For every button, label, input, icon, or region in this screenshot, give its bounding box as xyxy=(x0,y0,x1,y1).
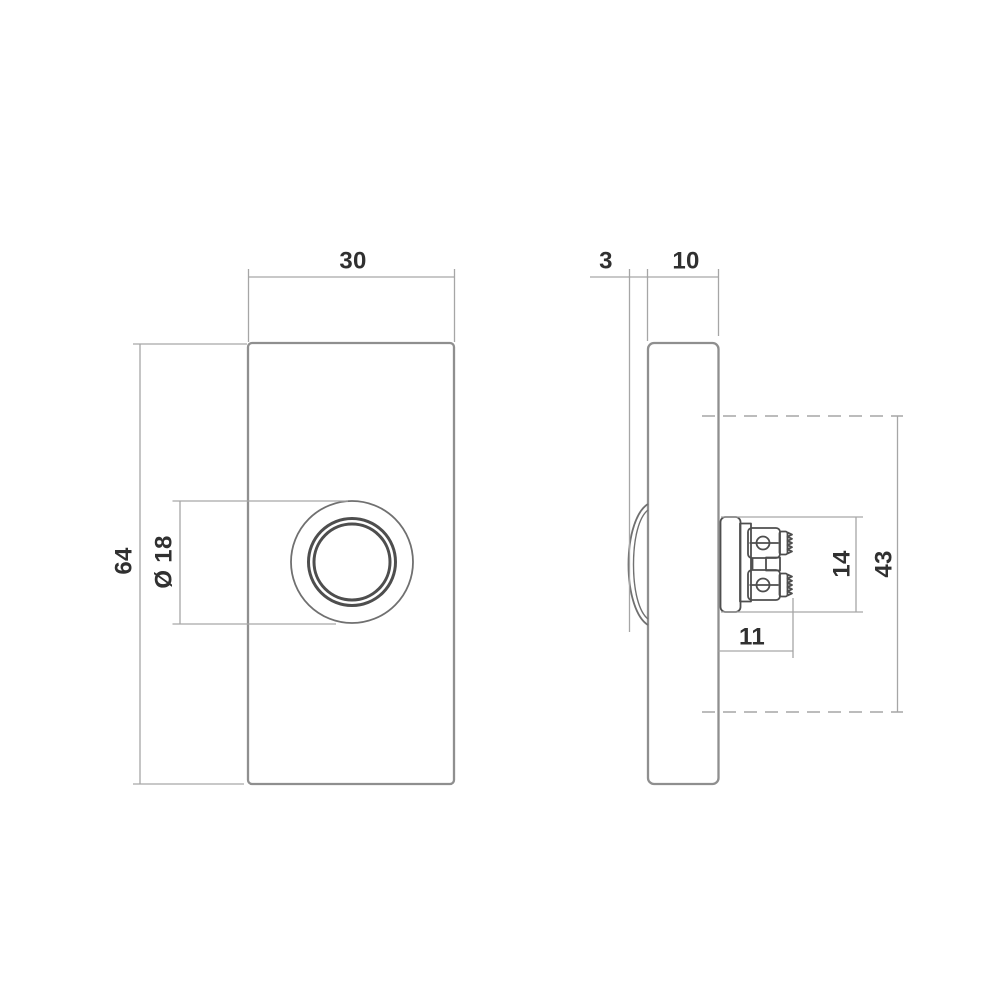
terminal-flange xyxy=(721,517,741,612)
terminal-cylinder xyxy=(740,524,751,602)
label-terminal-depth: 11 xyxy=(739,624,765,651)
label-front-width: 30 xyxy=(339,248,366,275)
label-button-protrusion: 3 xyxy=(599,248,613,275)
side-button-dome xyxy=(629,504,649,625)
label-housing-depth: 10 xyxy=(672,248,699,275)
front-button-cap-inner xyxy=(314,524,390,600)
drawing-canvas: 30 64 Ø 18 3 10 14 43 11 xyxy=(0,0,1000,1000)
front-plate xyxy=(248,343,454,784)
technical-drawing: 30 64 Ø 18 3 10 14 43 11 xyxy=(0,0,1000,1000)
label-terminal-diameter: 14 xyxy=(829,550,856,578)
label-button-diameter: Ø 18 xyxy=(151,535,178,588)
label-front-height: 64 xyxy=(111,547,138,575)
side-button-dome-inner xyxy=(634,510,649,619)
label-centerline-distance: 43 xyxy=(871,550,898,577)
front-button-cap-outer xyxy=(309,519,396,606)
side-housing xyxy=(648,343,719,784)
terminal-assembly xyxy=(721,517,793,612)
body-outlines xyxy=(248,343,719,784)
terminal-divider xyxy=(766,558,780,571)
